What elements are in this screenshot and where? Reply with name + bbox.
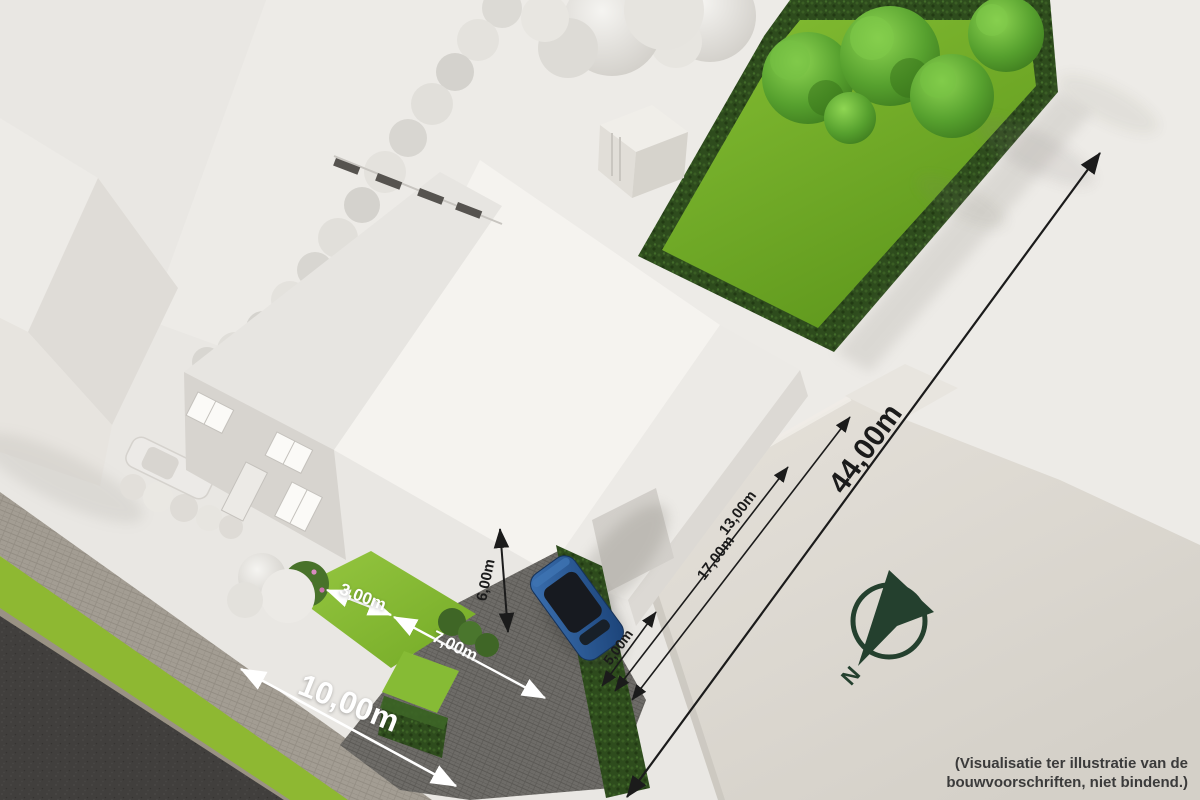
disclaimer-line-1: (Visualisatie ter illustratie van de xyxy=(946,754,1188,773)
site-plan-visualization: 10,00m 3,00m 7,00m 6,00m 5,00m 13,00m 17… xyxy=(0,0,1200,800)
scene-render xyxy=(0,0,1200,800)
garden-tree xyxy=(910,54,994,138)
disclaimer-line-2: bouwvoorschriften, niet bindend.) xyxy=(946,773,1188,792)
disclaimer-text: (Visualisatie ter illustratie van de bou… xyxy=(946,754,1188,792)
garden-tree xyxy=(824,92,876,144)
